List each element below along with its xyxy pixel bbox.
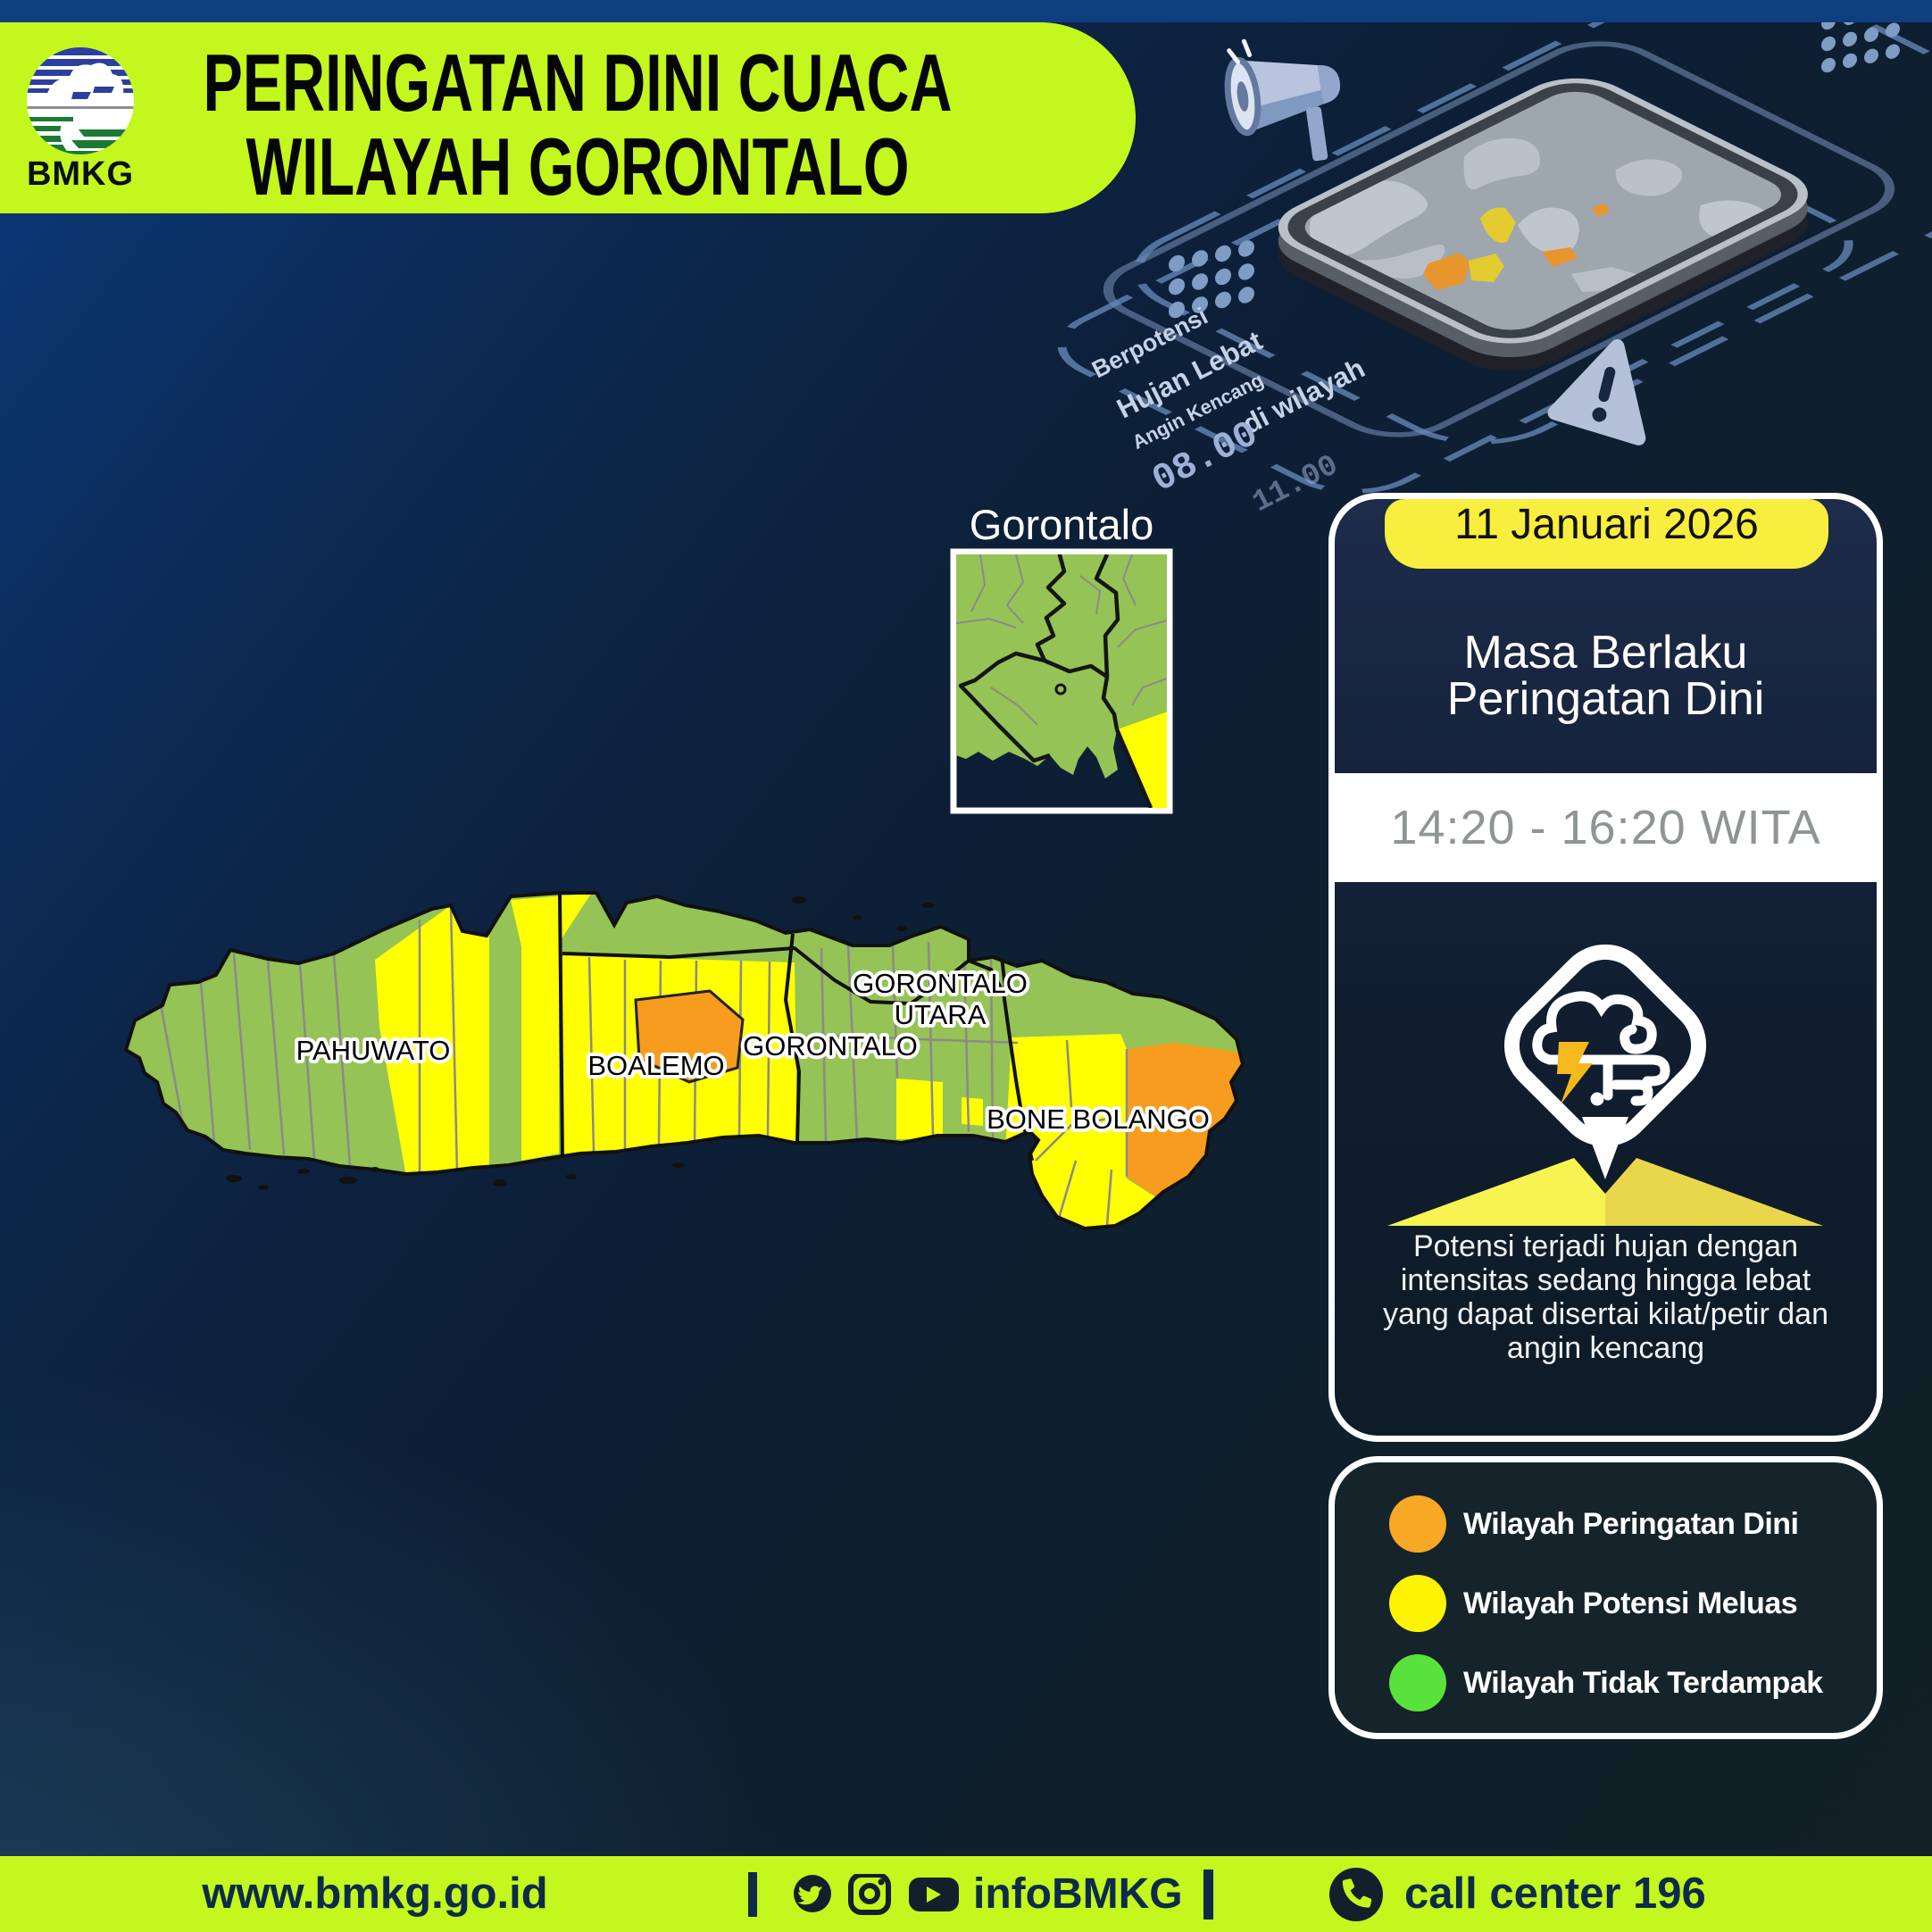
svg-text:BOALEMO: BOALEMO (587, 1050, 724, 1081)
svg-text:UTARA: UTARA (895, 999, 987, 1030)
svg-text:GORONTALO: GORONTALO (743, 1030, 918, 1062)
svg-text:11.00: 11.00 (1247, 449, 1344, 520)
svg-text:GORONTALO: GORONTALO (853, 968, 1028, 999)
svg-text:BONE BOLANGO: BONE BOLANGO (987, 1103, 1210, 1135)
svg-text:BMKG: BMKG (27, 155, 134, 193)
svg-text:PAHUWATO: PAHUWATO (296, 1035, 451, 1066)
